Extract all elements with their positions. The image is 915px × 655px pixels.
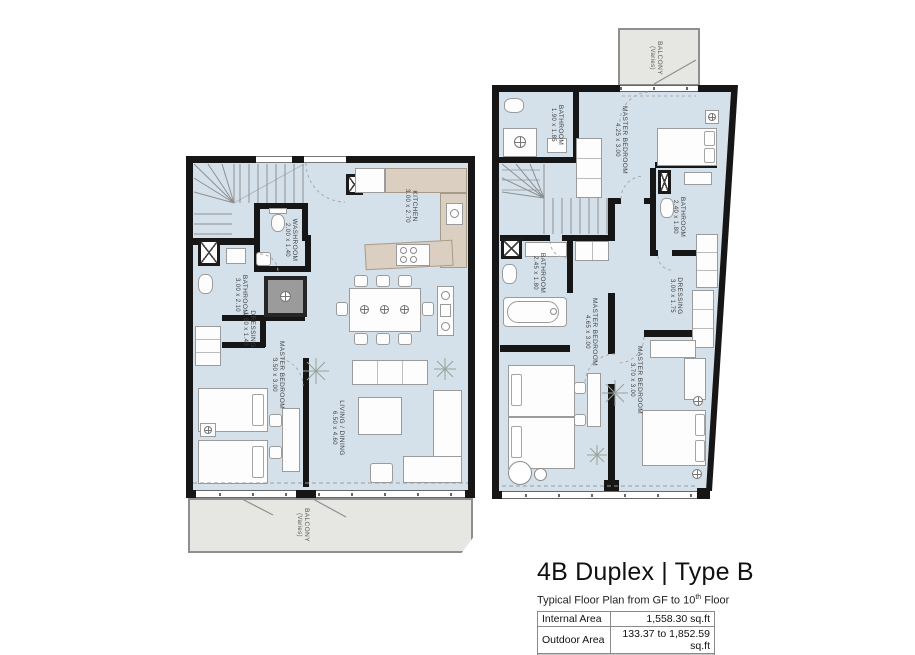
wall [303, 358, 309, 487]
kitchen-counter [385, 168, 467, 193]
place-setting-icon [380, 305, 389, 314]
table-row: Internal Area 1,558.30 sq.ft [538, 611, 715, 626]
wall [650, 250, 658, 256]
closet [650, 340, 696, 358]
upper-floor-plan: BALCONY (Varies) BATHROOM 1.90 x 1.85 MA… [492, 24, 742, 502]
wall [492, 491, 502, 499]
toilet [504, 98, 524, 113]
sink [226, 248, 246, 264]
room-name: BALCONY [655, 41, 663, 75]
room-label-living-dining: LIVING / DINING 6.50 x 4.60 [329, 400, 345, 455]
wall [608, 293, 615, 354]
room-name: BATHROOM [556, 105, 564, 145]
lamp-icon [693, 396, 703, 406]
sofa [403, 456, 462, 483]
room-name: KITCHEN [410, 189, 418, 223]
area-value: 133.37 to 1,852.59 sq.ft [611, 626, 715, 653]
room-name: BATHROOM [678, 197, 686, 237]
subtitle-text: Typical Floor Plan from GF to 10 [537, 595, 695, 607]
chair [336, 302, 348, 316]
chair [398, 275, 412, 287]
place-setting-icon [360, 305, 369, 314]
wardrobe [195, 326, 221, 366]
room-name: MASTER BEDROOM [635, 346, 643, 414]
lower-floor-plan: KITCHEN 3.00 x 2.70 WASHROOM 2.00 x 1.40… [186, 156, 475, 555]
wall [296, 490, 316, 498]
room-name: MASTER BEDROOM [620, 106, 628, 174]
room-dims: (Varies) [647, 41, 655, 75]
room-label-kitchen: KITCHEN 3.00 x 2.70 [402, 189, 418, 223]
lamp-icon [204, 426, 212, 434]
room-dims: 3.00 x 2.70 [402, 189, 410, 223]
shower-drain-icon [514, 136, 526, 148]
pillow [252, 446, 264, 478]
pillow [511, 374, 522, 406]
sink [256, 252, 271, 266]
room-dims: 3.00 x 2.10 [232, 275, 240, 315]
wall [615, 198, 621, 204]
round-table [508, 461, 532, 485]
place-setting-icon [400, 305, 409, 314]
window-band [620, 85, 698, 92]
room-name: BATHROOM [538, 253, 546, 293]
desk [587, 373, 601, 427]
chair [422, 302, 434, 316]
area-label: Outdoor Area [538, 626, 611, 653]
floor-plan-sheet: KITCHEN 3.00 x 2.70 WASHROOM 2.00 x 1.40… [0, 0, 915, 655]
wall [650, 168, 656, 256]
console-knob-icon [441, 291, 450, 300]
wardrobe [576, 138, 602, 198]
room-label-master-bedroom: MASTER BEDROOM 4.65 x 3.00 [582, 298, 598, 366]
room-dims: 1.90 x 1.85 [548, 105, 556, 145]
armchair [370, 463, 393, 483]
stool [534, 468, 547, 481]
burner-icon [410, 247, 417, 254]
plan-subtitle: Typical Floor Plan from GF to 10th Floor [537, 594, 907, 607]
room-name: LIVING / DINING [337, 400, 345, 455]
balcony [188, 498, 473, 553]
room-label-master-bedroom: MASTER BEDROOM 4.25 x 3.00 [612, 106, 628, 174]
pillow [695, 440, 705, 462]
sofa [433, 390, 462, 460]
room-label-bathroom: BATHROOM 3.00 x 2.10 [232, 275, 248, 315]
chair [376, 275, 390, 287]
burner-icon [410, 256, 417, 263]
chair [354, 333, 368, 345]
plan-title: 4B Duplex | Type B [537, 558, 907, 587]
chair [269, 414, 282, 427]
fridge [355, 168, 385, 193]
entry-door-opening [304, 156, 346, 163]
wall [608, 384, 615, 480]
pillow [704, 131, 715, 146]
coffee-table [358, 397, 402, 435]
room-label-dressing: DRESSING 1.80 x 1.40 [240, 310, 256, 347]
room-name: MASTER BEDROOM [590, 298, 598, 366]
lamp-icon [692, 469, 702, 479]
closet [684, 358, 706, 400]
desk [282, 408, 300, 472]
title-block: 4B Duplex | Type B Typical Floor Plan fr… [537, 558, 907, 655]
room-dims: 2.45 x 1.80 [530, 253, 538, 293]
room-label-master-bedroom: MASTER BEDROOM 3.50 x 3.00 [269, 341, 285, 409]
room-name: MASTER BEDROOM [277, 341, 285, 409]
closet [575, 241, 609, 261]
room-dims: 4.25 x 3.00 [612, 106, 620, 174]
chair [398, 333, 412, 345]
area-table: Internal Area 1,558.30 sq.ft Outdoor Are… [537, 611, 715, 655]
wardrobe [696, 234, 718, 288]
room-name: DRESSING [248, 310, 256, 347]
window-band [186, 490, 475, 498]
room-label-dressing: DRESSING 3.00 x 1.75 [667, 277, 683, 314]
wall [567, 235, 573, 293]
subtitle-text: Floor [701, 595, 729, 607]
wall [697, 488, 710, 499]
toilet [502, 264, 517, 284]
room-dims: 3.50 x 3.00 [269, 341, 277, 409]
room-dims: (Varies) [294, 508, 302, 542]
room-dims: 4.65 x 3.00 [582, 298, 590, 366]
wall [500, 345, 570, 352]
toilet [198, 274, 213, 294]
room-name: WASHROOM [290, 219, 298, 262]
chair [269, 446, 282, 459]
wall [254, 266, 311, 272]
area-value: 1,558.30 sq.ft [611, 611, 715, 626]
room-label-balcony: BALCONY (Varies) [647, 41, 663, 75]
room-name: DRESSING [675, 277, 683, 314]
chair [574, 414, 586, 426]
shower-drain-icon [280, 291, 291, 302]
room-dims: 3.70 x 3.00 [627, 346, 635, 414]
window-band [492, 491, 707, 499]
wall [186, 490, 196, 498]
console-knob-icon [441, 322, 450, 331]
pillow [252, 394, 264, 426]
sink-basin-icon [450, 209, 459, 218]
room-dims: 2.00 x 1.40 [282, 219, 290, 262]
chair [376, 333, 390, 345]
room-dims: 3.00 x 1.75 [667, 277, 675, 314]
sofa [352, 360, 428, 385]
pillow [511, 426, 522, 458]
room-label-master-bedroom: MASTER BEDROOM 3.70 x 3.00 [627, 346, 643, 414]
chair [354, 275, 368, 287]
burner-icon [400, 247, 407, 254]
window-opening [256, 156, 292, 163]
pillow [695, 414, 705, 436]
room-label-bathroom: BATHROOM 1.90 x 1.85 [548, 105, 564, 145]
room-label-washroom: WASHROOM 2.00 x 1.40 [282, 219, 298, 262]
room-dims: 1.80 x 1.40 [240, 310, 248, 347]
room-name: BALCONY [302, 508, 310, 542]
room-label-bathroom: BATHROOM 2.45 x 1.80 [530, 253, 546, 293]
chair [574, 382, 586, 394]
room-dims: 6.50 x 4.60 [329, 400, 337, 455]
wall [604, 480, 619, 491]
shaft [501, 238, 522, 259]
area-label: Internal Area [538, 611, 611, 626]
room-label-bathroom: BATHROOM 2.40 x 1.80 [670, 197, 686, 237]
burner-icon [400, 256, 407, 263]
room-label-balcony: BALCONY (Varies) [294, 508, 310, 542]
sink [684, 172, 712, 185]
shaft [198, 239, 220, 266]
room-name: BATHROOM [240, 275, 248, 315]
wall [465, 490, 475, 498]
console-hob [440, 304, 451, 317]
wall [499, 157, 579, 163]
shaft [658, 170, 671, 194]
lamp-icon [708, 113, 716, 121]
room-dims: 2.40 x 1.80 [670, 197, 678, 237]
pillow [704, 148, 715, 163]
drain-icon [550, 308, 557, 315]
table-row: Outdoor Area 133.37 to 1,852.59 sq.ft [538, 626, 715, 653]
